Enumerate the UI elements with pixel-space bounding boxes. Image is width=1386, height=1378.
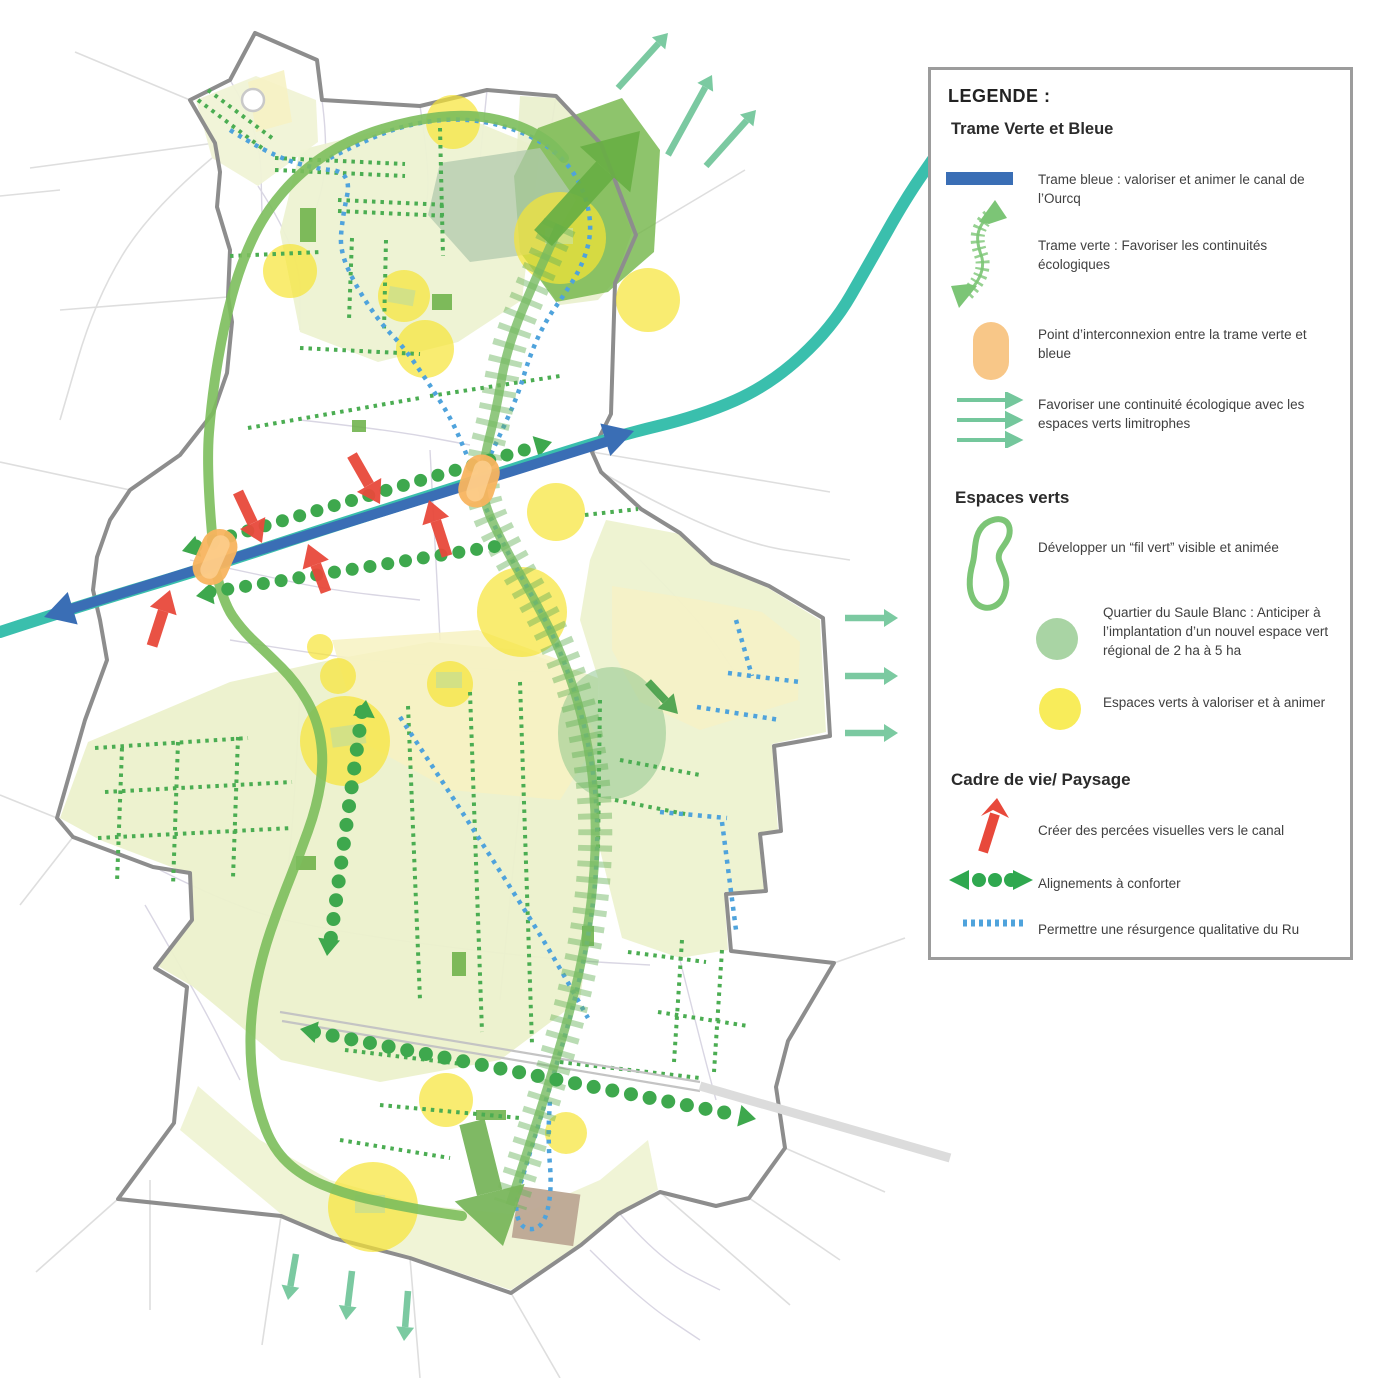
legend-label: Point d’interconnexion entre la trame ve…: [1038, 325, 1333, 363]
legend-label: Quartier du Saule Blanc : Anticiper à l’…: [1103, 603, 1355, 660]
legend-section-trame-verte-bleue: Trame Verte et Bleue: [951, 120, 1113, 139]
yellow-circle-icon: [1038, 687, 1082, 736]
legend-label: Trame verte : Favoriser les continuités …: [1038, 236, 1333, 274]
legend-title: LEGENDE :: [948, 86, 1051, 107]
blue-dotted-icon: [961, 916, 1025, 935]
legend-label: Permettre une résurgence qualitative du …: [1038, 920, 1368, 939]
red-arrow-icon: [967, 796, 1011, 863]
green-circle-icon: [1035, 617, 1079, 666]
legend-label: Trame bleue : valoriser et animer le can…: [1038, 170, 1333, 208]
legend-label: Créer des percées visuelles vers le cana…: [1038, 821, 1358, 840]
blue-line-icon: [945, 170, 1015, 193]
legend-label: Développer un “fil vert” visible et anim…: [1038, 538, 1333, 557]
urban-planning-map-page: LEGENDE : Trame Verte et Bleue Trame ble…: [0, 0, 1386, 1378]
triple-arrows-icon: [955, 392, 1027, 453]
orange-pill-icon: [971, 320, 1011, 387]
green-scurve-icon: [949, 198, 1015, 315]
roundabout: [242, 89, 264, 111]
legend-label: Espaces verts à valoriser et à animer: [1103, 693, 1355, 712]
legend-section-cadre-de-vie: Cadre de vie/ Paysage: [951, 770, 1131, 790]
legend-section-espaces-verts: Espaces verts: [955, 488, 1069, 508]
legend-label: Alignements à conforter: [1038, 874, 1358, 893]
legend-label: Favoriser une continuité écologique avec…: [1038, 395, 1333, 433]
legend-panel: LEGENDE : Trame Verte et Bleue Trame ble…: [928, 67, 1353, 960]
dot-alignment-icon: [947, 866, 1035, 899]
green-loop-icon: [963, 512, 1019, 619]
